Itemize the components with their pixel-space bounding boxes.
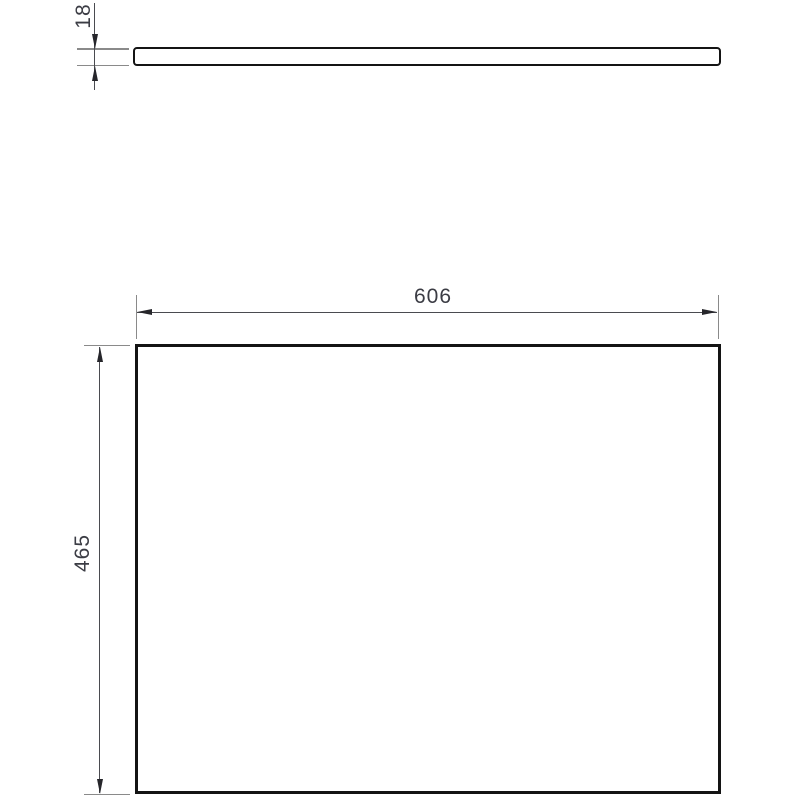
- height-extension-line-top: [84, 345, 130, 347]
- height-arrow-top-icon: [97, 347, 103, 362]
- technical-drawing-canvas: 18 606 465: [0, 0, 800, 800]
- width-dimension-label: 606: [393, 286, 473, 308]
- width-extension-line-left: [136, 295, 138, 339]
- thickness-extension-line-bottom: [77, 65, 129, 67]
- width-arrow-right-icon: [702, 309, 717, 315]
- height-dimension-line: [99, 347, 101, 793]
- width-extension-line-right: [718, 295, 720, 339]
- thickness-extension-line-top: [77, 48, 129, 50]
- thickness-arrow-bottom-icon: [92, 66, 98, 81]
- height-extension-line-bottom: [84, 794, 130, 796]
- thickness-arrow-top-icon: [92, 34, 98, 49]
- panel-top-view-outline: [135, 344, 721, 794]
- width-dimension-line: [137, 312, 717, 314]
- panel-side-view-outline: [133, 47, 721, 66]
- thickness-dimension-label: 18: [73, 0, 95, 36]
- width-arrow-left-icon: [137, 309, 152, 315]
- height-arrow-bottom-icon: [97, 779, 103, 794]
- height-dimension-label: 465: [72, 523, 94, 583]
